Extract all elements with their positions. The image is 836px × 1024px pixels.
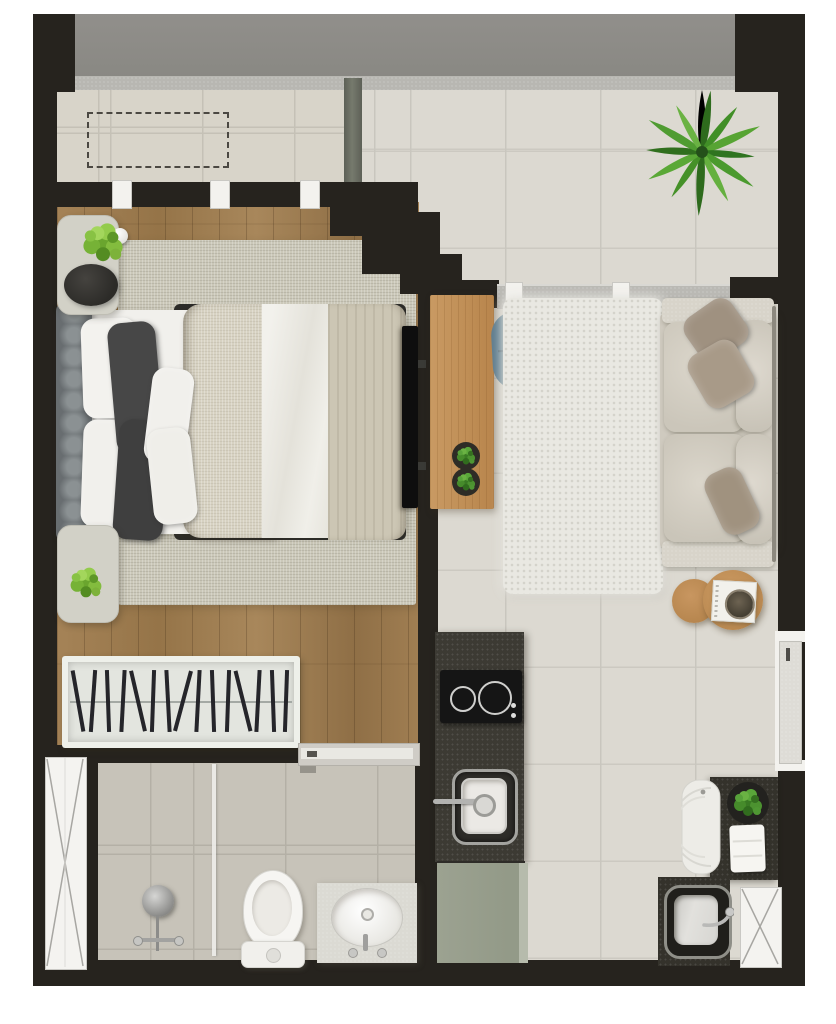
- plant-icon: [75, 215, 131, 271]
- book-spine-lines: [714, 584, 719, 617]
- desk-plant-icon: [453, 443, 479, 469]
- wall-right: [778, 14, 805, 986]
- door-handle-icon: [307, 751, 317, 757]
- shower-glass-partition: [212, 764, 216, 956]
- plate-icon: [724, 589, 756, 621]
- cooktop-icon: [440, 670, 522, 723]
- cooktop-dot: [511, 703, 516, 708]
- burner-icon: [478, 681, 512, 715]
- toilet-tank: [241, 941, 305, 968]
- folded-towels: [729, 824, 766, 872]
- toilet-icon: [243, 870, 303, 950]
- shower-knob: [174, 936, 184, 946]
- shaft-x-panel: [45, 757, 87, 970]
- window-post-icon: [300, 180, 320, 209]
- towel-fold-line: [733, 854, 762, 857]
- living-rug: [503, 298, 663, 594]
- sofa: [658, 298, 778, 570]
- large-plant-icon: [636, 86, 768, 218]
- tv-bracket: [418, 360, 426, 368]
- flush-button-icon: [266, 948, 281, 963]
- tv-icon: [402, 326, 418, 508]
- service-plant-icon: [728, 783, 768, 823]
- shaft-x-panel: [740, 887, 782, 968]
- wardrobe: [62, 656, 300, 748]
- cooktop-dot: [511, 713, 516, 718]
- shower-head-icon: [142, 885, 174, 917]
- shower-knob: [133, 936, 143, 946]
- x-mark-icon: [46, 758, 84, 967]
- bedroom-sliding-door: [298, 743, 420, 766]
- burner-icon: [450, 686, 476, 712]
- towel-fold-line: [733, 839, 762, 842]
- sofa-frame-edge: [772, 306, 776, 562]
- vanity-knob: [348, 948, 358, 958]
- vanity-knob: [377, 948, 387, 958]
- floor-plan: [0, 0, 836, 1024]
- x-mark-icon: [741, 888, 779, 965]
- fridge: [437, 861, 525, 963]
- faucet-base: [473, 794, 496, 817]
- bed-blanket: [328, 304, 406, 540]
- tv-bracket: [418, 462, 426, 470]
- toilet-seat: [252, 880, 292, 936]
- book-tray: [711, 580, 757, 623]
- sink-drain: [361, 908, 374, 921]
- fridge-hinge-strip: [519, 863, 528, 963]
- sofa-armrest: [662, 541, 774, 567]
- laundry-faucet-icon: [694, 905, 734, 933]
- ac-unit-dashed-outline: [87, 112, 229, 168]
- vanity-faucet: [363, 934, 368, 951]
- window-post-icon: [112, 180, 132, 209]
- top-slab: [33, 14, 805, 78]
- shower-arm: [156, 915, 159, 951]
- entry-door-handle-icon: [786, 648, 790, 661]
- washing-machine-icon: [681, 779, 721, 875]
- door-stop: [300, 766, 316, 773]
- door-leaf: [301, 748, 413, 759]
- window-post-icon: [210, 180, 230, 209]
- plant-icon: [64, 561, 108, 605]
- entry-door-leaf: [779, 641, 802, 764]
- desk-plant-icon: [453, 469, 479, 495]
